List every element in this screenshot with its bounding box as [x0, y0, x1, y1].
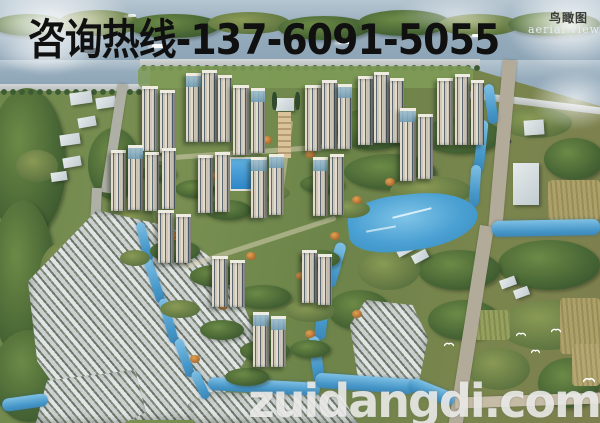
- forest-patch: [544, 138, 600, 180]
- flying-bird: [444, 341, 454, 347]
- tree-cluster: [200, 320, 244, 340]
- autumn-tree: [352, 310, 362, 318]
- residential-tower: [437, 78, 453, 145]
- aerial-render: 鸟瞰图 aerial view 咨询热线-137-6091-5055 zuida…: [0, 0, 600, 423]
- residential-tower: [358, 76, 373, 145]
- residential-tower: [212, 256, 228, 307]
- warehouse-building: [524, 119, 545, 135]
- flying-bird: [516, 331, 526, 337]
- stream-segment: [483, 83, 498, 124]
- residential-tower: [253, 312, 269, 367]
- residential-tower: [186, 73, 201, 142]
- warehouse-building: [513, 286, 530, 300]
- hotline-text: 咨询热线-137-6091-5055: [28, 6, 499, 67]
- palm-tree: [272, 92, 277, 110]
- residential-tower: [215, 152, 230, 212]
- tree-cluster: [120, 250, 150, 266]
- residential-tower: [251, 157, 267, 218]
- residential-tower: [202, 70, 217, 142]
- stream-segment: [469, 165, 482, 208]
- residential-tower: [233, 85, 249, 155]
- residential-tower: [271, 316, 286, 367]
- residential-tower: [142, 86, 158, 151]
- lake: [345, 187, 480, 256]
- autumn-tree: [246, 252, 256, 260]
- residential-tower: [338, 84, 352, 149]
- residential-tower: [418, 114, 433, 179]
- residential-tower: [305, 85, 321, 151]
- flying-bird: [531, 348, 540, 354]
- field: [548, 180, 600, 220]
- residential-tower: [302, 250, 317, 303]
- residential-tower: [176, 214, 191, 263]
- warehouse-building: [77, 116, 96, 129]
- aerial-view-label-en: aerial view: [528, 23, 600, 36]
- residential-tower: [111, 150, 126, 211]
- canal: [492, 219, 600, 237]
- watermark-text: zuidangdi.com: [248, 374, 600, 423]
- entrance-canopy: [276, 98, 294, 111]
- central-plaza: [278, 112, 291, 158]
- autumn-tree: [305, 330, 315, 338]
- residential-tower: [158, 210, 174, 263]
- residential-tower: [318, 254, 332, 305]
- autumn-tree: [385, 178, 395, 186]
- warehouse-building: [50, 171, 67, 182]
- residential-tower: [471, 80, 484, 145]
- residential-tower: [162, 148, 176, 209]
- warehouse-building: [499, 276, 517, 290]
- residential-tower: [230, 260, 245, 307]
- residential-tower: [455, 74, 470, 145]
- autumn-tree: [190, 355, 200, 363]
- autumn-tree: [352, 196, 362, 204]
- warehouse-building: [59, 133, 80, 147]
- residential-tower: [322, 80, 337, 149]
- residential-tower: [269, 154, 284, 215]
- residential-tower: [330, 154, 344, 215]
- tree-cluster: [160, 300, 200, 318]
- residential-tower: [198, 155, 213, 213]
- warehouse-building: [62, 156, 81, 169]
- autumn-tree: [330, 232, 340, 240]
- residential-tower: [128, 145, 143, 210]
- residential-tower: [374, 72, 389, 143]
- residential-tower: [400, 108, 416, 181]
- residential-tower: [218, 75, 232, 142]
- residential-tower: [160, 90, 175, 153]
- residential-tower: [251, 88, 265, 153]
- warehouse-building: [69, 91, 92, 106]
- warehouse-building: [513, 163, 539, 205]
- residential-tower: [145, 152, 159, 211]
- flying-bird: [551, 327, 561, 333]
- tree-cluster: [290, 340, 330, 358]
- palm-tree: [295, 92, 300, 110]
- residential-tower: [313, 157, 328, 216]
